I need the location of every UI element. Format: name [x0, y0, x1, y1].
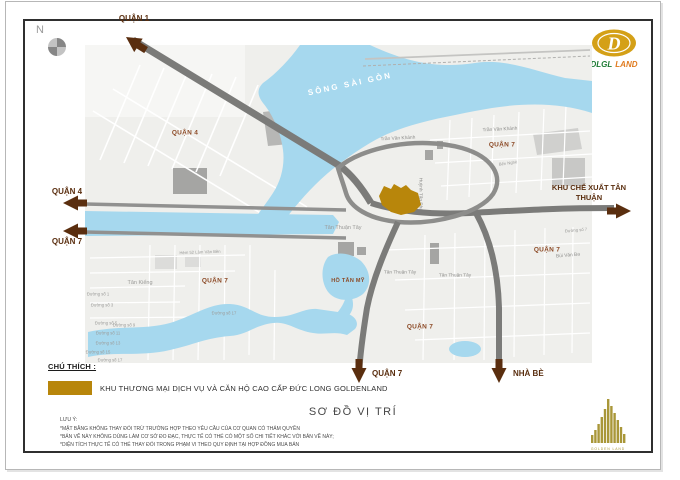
- map-label: Đường số 3: [91, 303, 113, 308]
- map-label: QUẬN 7: [534, 247, 560, 254]
- legend-swatch: [48, 381, 92, 395]
- legend-heading: CHÚ THÍCH :: [48, 362, 96, 371]
- direction-label-district4: QUẬN 4: [44, 187, 90, 196]
- map-label: Đường số 7: [565, 227, 588, 234]
- direction-label-district7-south: QUẬN 7: [372, 369, 402, 378]
- map-label: HỒ TÂN MỸ: [331, 278, 365, 284]
- map-label: QUẬN 7: [407, 324, 433, 331]
- notes-heading: LƯU Ý:: [60, 417, 77, 423]
- map-label: Bùi Văn Ba: [556, 252, 580, 259]
- map-label: QUẬN 4: [172, 130, 198, 137]
- compass-north-label: N: [36, 24, 44, 36]
- map-label: Tân Kiểng: [127, 280, 152, 286]
- direction-label-district7-west: QUẬN 7: [44, 237, 90, 246]
- note-line: *MẶT BẰNG KHÔNG THAY ĐỔI TRỪ TRƯỜNG HỢP …: [60, 425, 334, 433]
- map-label: Đường số 15: [86, 350, 111, 355]
- watermark-caption: GOLDEN LAND: [591, 447, 625, 451]
- map-label: Trần Văn Khánh: [381, 136, 416, 143]
- note-line: *BẢN VẼ NÀY KHÔNG DÙNG LÀM CƠ SỞ ĐO ĐẠC,…: [60, 433, 334, 441]
- compass-icon: [48, 38, 66, 56]
- map-label: Đường số 13: [96, 341, 121, 346]
- map-label: Bến Nghé: [498, 159, 517, 167]
- direction-label-tan-thuan-epz: KHU CHẾ XUẤT TÂN THUẬN: [545, 183, 633, 203]
- location-map-page: N D DLGLLAND: [0, 0, 680, 480]
- dlgl-land-logo: D DLGLLAND: [583, 28, 645, 72]
- map-label: Đường số 1: [87, 292, 109, 297]
- map-label: Đường số 17: [212, 311, 237, 316]
- logo-brand-dlgl: DLGL: [591, 60, 613, 69]
- map-label: SÔNG SÀI GÒN: [307, 71, 393, 98]
- map-label: Tân Thuận Tây: [384, 271, 416, 276]
- map-label: Đường số 17: [98, 358, 123, 363]
- map-label: Huỳnh Tấn Phát: [418, 178, 423, 213]
- map-label: QUẬN 7: [489, 142, 515, 149]
- map-label: QUẬN 7: [202, 278, 228, 285]
- map-label: Đường số 11: [96, 331, 120, 336]
- map-labels: QUẬN 4QUẬN 7QUẬN 7QUẬN 7QUẬN 7HỒ TÂN MỸS…: [85, 45, 592, 363]
- map-label: Hẻm 52 Lâm Văn Bền: [179, 249, 220, 255]
- direction-label-district1: QUẬN 1: [106, 14, 162, 23]
- direction-label-nha-be: NHÀ BÈ: [513, 369, 544, 378]
- page-title: SƠ ĐỒ VỊ TRÍ: [243, 406, 463, 418]
- logo-brand-land: LAND: [615, 60, 637, 69]
- building-watermark-icon: GOLDEN LAND: [585, 397, 641, 455]
- dlgl-logo-ellipse-icon: D: [583, 28, 645, 60]
- legend-item-label: KHU THƯƠNG MẠI DỊCH VỤ VÀ CĂN HỘ CAO CẤP…: [100, 384, 388, 393]
- logo-brand-text: DLGLLAND: [583, 60, 645, 69]
- city-map: QUẬN 4QUẬN 7QUẬN 7QUẬN 7QUẬN 7HỒ TÂN MỸS…: [85, 45, 592, 363]
- svg-text:D: D: [607, 34, 621, 54]
- notes-list: *MẶT BẰNG KHÔNG THAY ĐỔI TRỪ TRƯỜNG HỢP …: [60, 425, 334, 449]
- map-label: Tân Thuận Tây: [439, 274, 471, 279]
- map-label: Trần Văn Khánh: [483, 127, 518, 134]
- map-label: Đường số 9: [113, 323, 135, 328]
- map-label: Tân Thuận Tây: [324, 225, 361, 231]
- note-line: *DIỆN TÍCH THỰC TẾ CÓ THỂ THAY ĐỔI TRONG…: [60, 441, 334, 449]
